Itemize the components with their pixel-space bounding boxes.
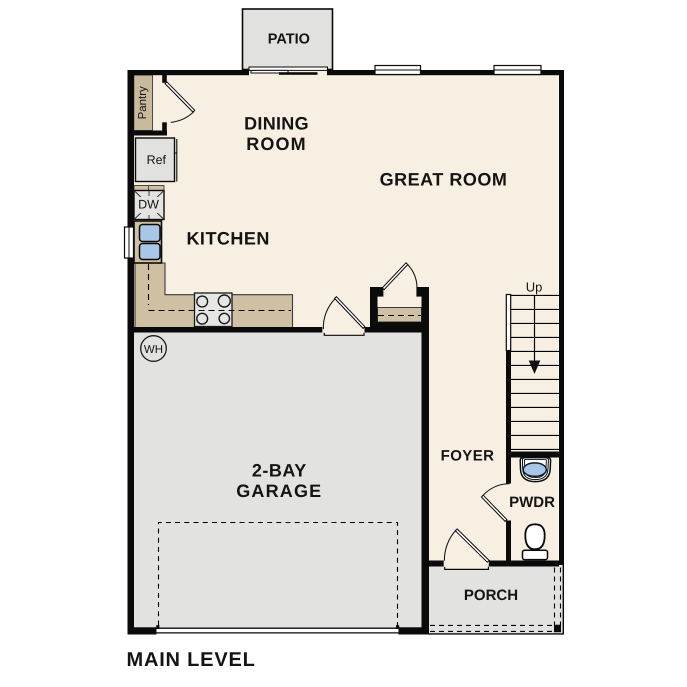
svg-text:GARAGE: GARAGE — [236, 481, 322, 501]
svg-text:DINING: DINING — [244, 114, 309, 134]
svg-text:KITCHEN: KITCHEN — [186, 228, 270, 248]
svg-text:PATIO: PATIO — [268, 32, 310, 48]
svg-text:Ref: Ref — [147, 153, 167, 167]
svg-text:Up: Up — [526, 280, 543, 295]
svg-text:GREAT ROOM: GREAT ROOM — [380, 170, 508, 190]
svg-text:PWDR: PWDR — [509, 494, 555, 511]
svg-text:Pantry: Pantry — [137, 86, 149, 119]
svg-text:2-BAY: 2-BAY — [252, 461, 307, 481]
svg-text:ROOM: ROOM — [246, 134, 306, 154]
svg-text:FOYER: FOYER — [441, 448, 495, 465]
svg-text:DW: DW — [138, 198, 159, 212]
svg-text:MAIN LEVEL: MAIN LEVEL — [127, 649, 256, 671]
svg-text:PORCH: PORCH — [464, 587, 518, 604]
svg-text:WH: WH — [144, 344, 163, 356]
